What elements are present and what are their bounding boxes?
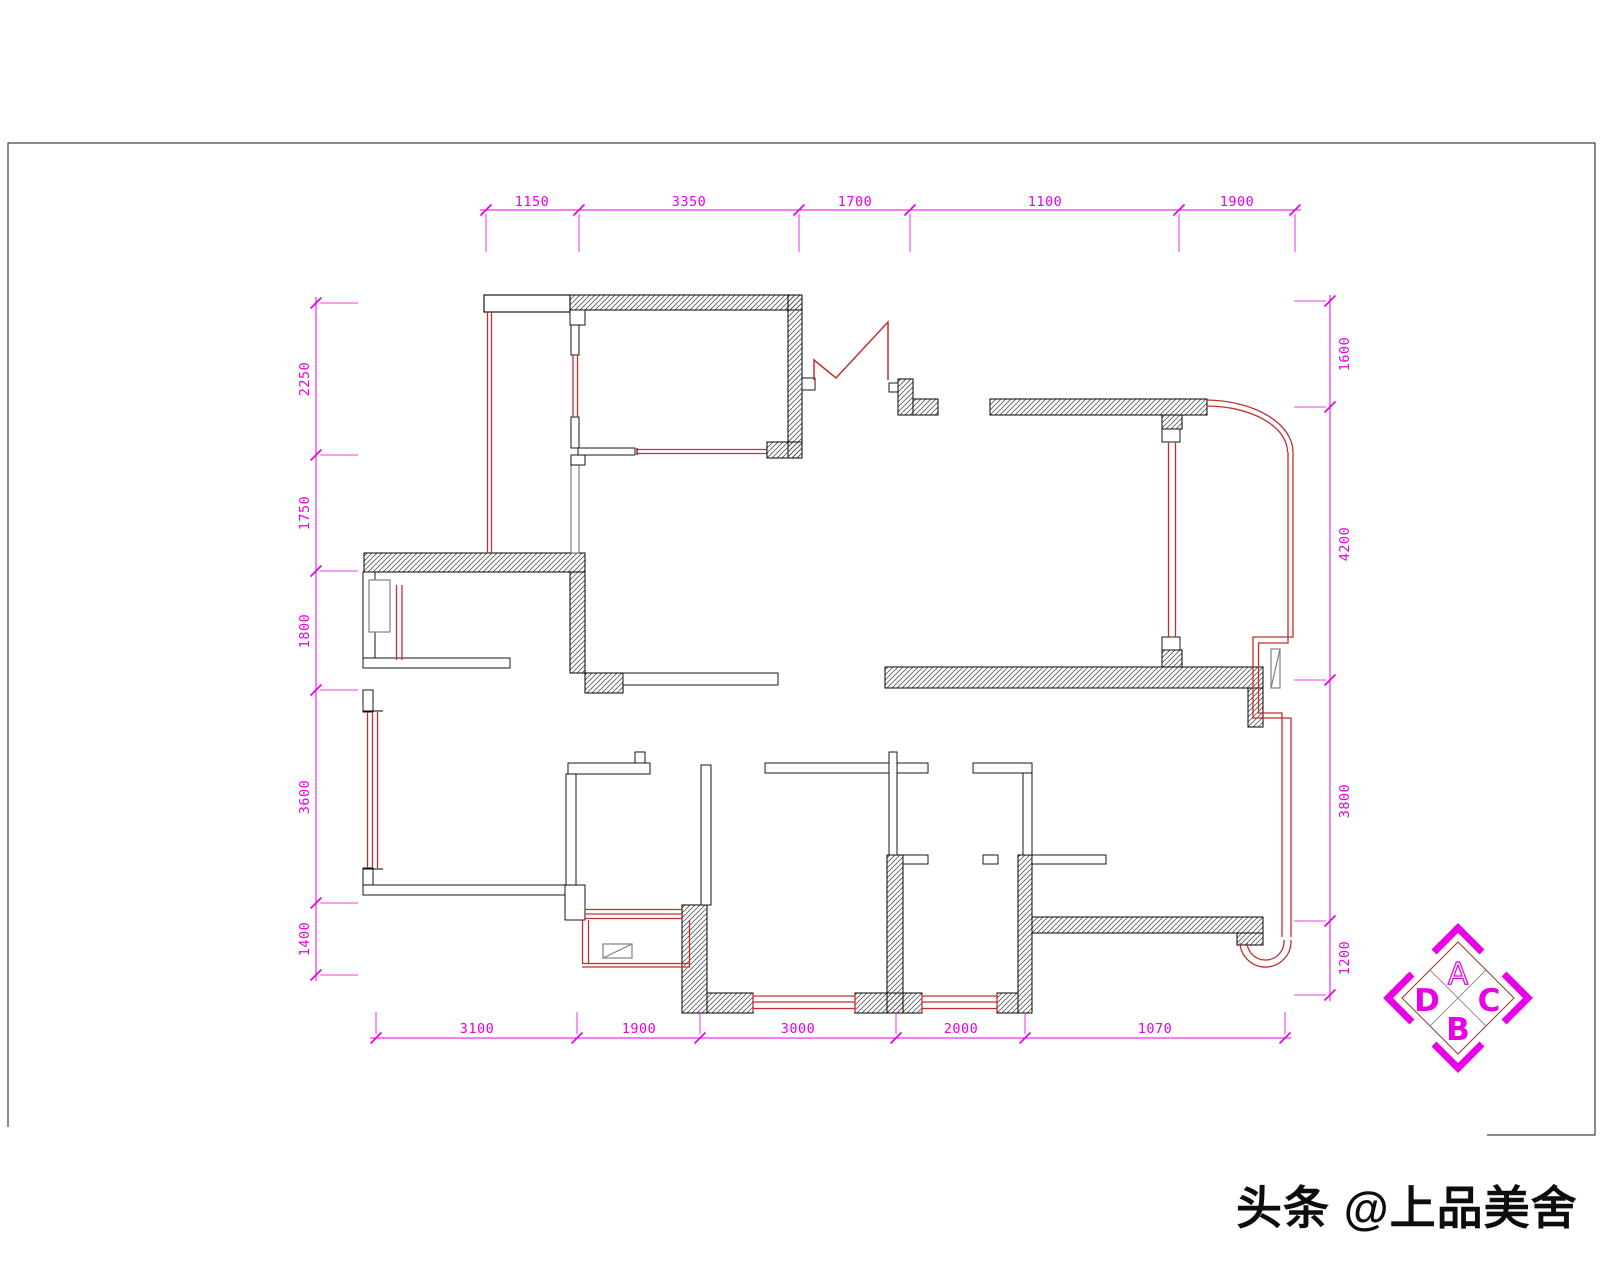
dim-label-bottom-1: 1900	[622, 1021, 657, 1037]
bedroom-window	[368, 712, 378, 868]
bay-window-2	[922, 994, 997, 1012]
dim-label-left-0: 2250	[297, 362, 313, 397]
bay-window-1	[753, 994, 855, 1012]
hatched-walls	[364, 295, 1263, 1013]
door-jambs	[570, 310, 1180, 650]
entry-door-zigzag	[814, 322, 888, 380]
dim-label-right-1: 4200	[1337, 527, 1353, 562]
dim-label-bottom-4: 1070	[1138, 1021, 1173, 1037]
floor-plan-drawing: 1150 3350 1700 1100 1900 2250 1750 1800 …	[0, 0, 1600, 1280]
compass-logo-icon: A C B D	[1388, 928, 1528, 1068]
compass-letter-c: C	[1478, 983, 1501, 1019]
compass-letter-a: A	[1448, 957, 1469, 992]
compass-letter-b: B	[1446, 1012, 1470, 1048]
dim-label-left-2: 1800	[297, 614, 313, 649]
compass-letter-d: D	[1414, 983, 1440, 1019]
shaft-window-icon	[369, 580, 390, 632]
thin-walls	[363, 295, 1106, 920]
balcony-arc-top	[1207, 400, 1293, 452]
dim-label-left-1: 1750	[297, 496, 313, 531]
dim-label-top-2: 1700	[838, 194, 873, 210]
dim-label-top-0: 1150	[515, 194, 550, 210]
dim-label-right-3: 1200	[1337, 941, 1353, 976]
dim-label-top-1: 3350	[672, 194, 707, 210]
floor-plan-page: 1150 3350 1700 1100 1900 2250 1750 1800 …	[0, 0, 1600, 1280]
sheet-border	[8, 143, 1595, 1135]
dim-label-bottom-3: 2000	[944, 1021, 979, 1037]
dim-label-bottom-0: 3100	[460, 1021, 495, 1037]
dim-label-left-3: 3600	[297, 780, 313, 815]
dim-label-right-2: 3800	[1337, 784, 1353, 819]
dim-label-right-0: 1600	[1337, 337, 1353, 372]
dim-label-top-4: 1900	[1220, 194, 1255, 210]
balcony-slab-top-left	[484, 295, 570, 312]
dim-label-top-3: 1100	[1028, 194, 1063, 210]
dim-label-bottom-2: 3000	[781, 1021, 816, 1037]
dimension-labels: 1150 3350 1700 1100 1900 2250 1750 1800 …	[297, 194, 1353, 1037]
dim-label-left-4: 1400	[297, 922, 313, 957]
watermark-text: 头条 @上品美舍	[1236, 1172, 1556, 1238]
